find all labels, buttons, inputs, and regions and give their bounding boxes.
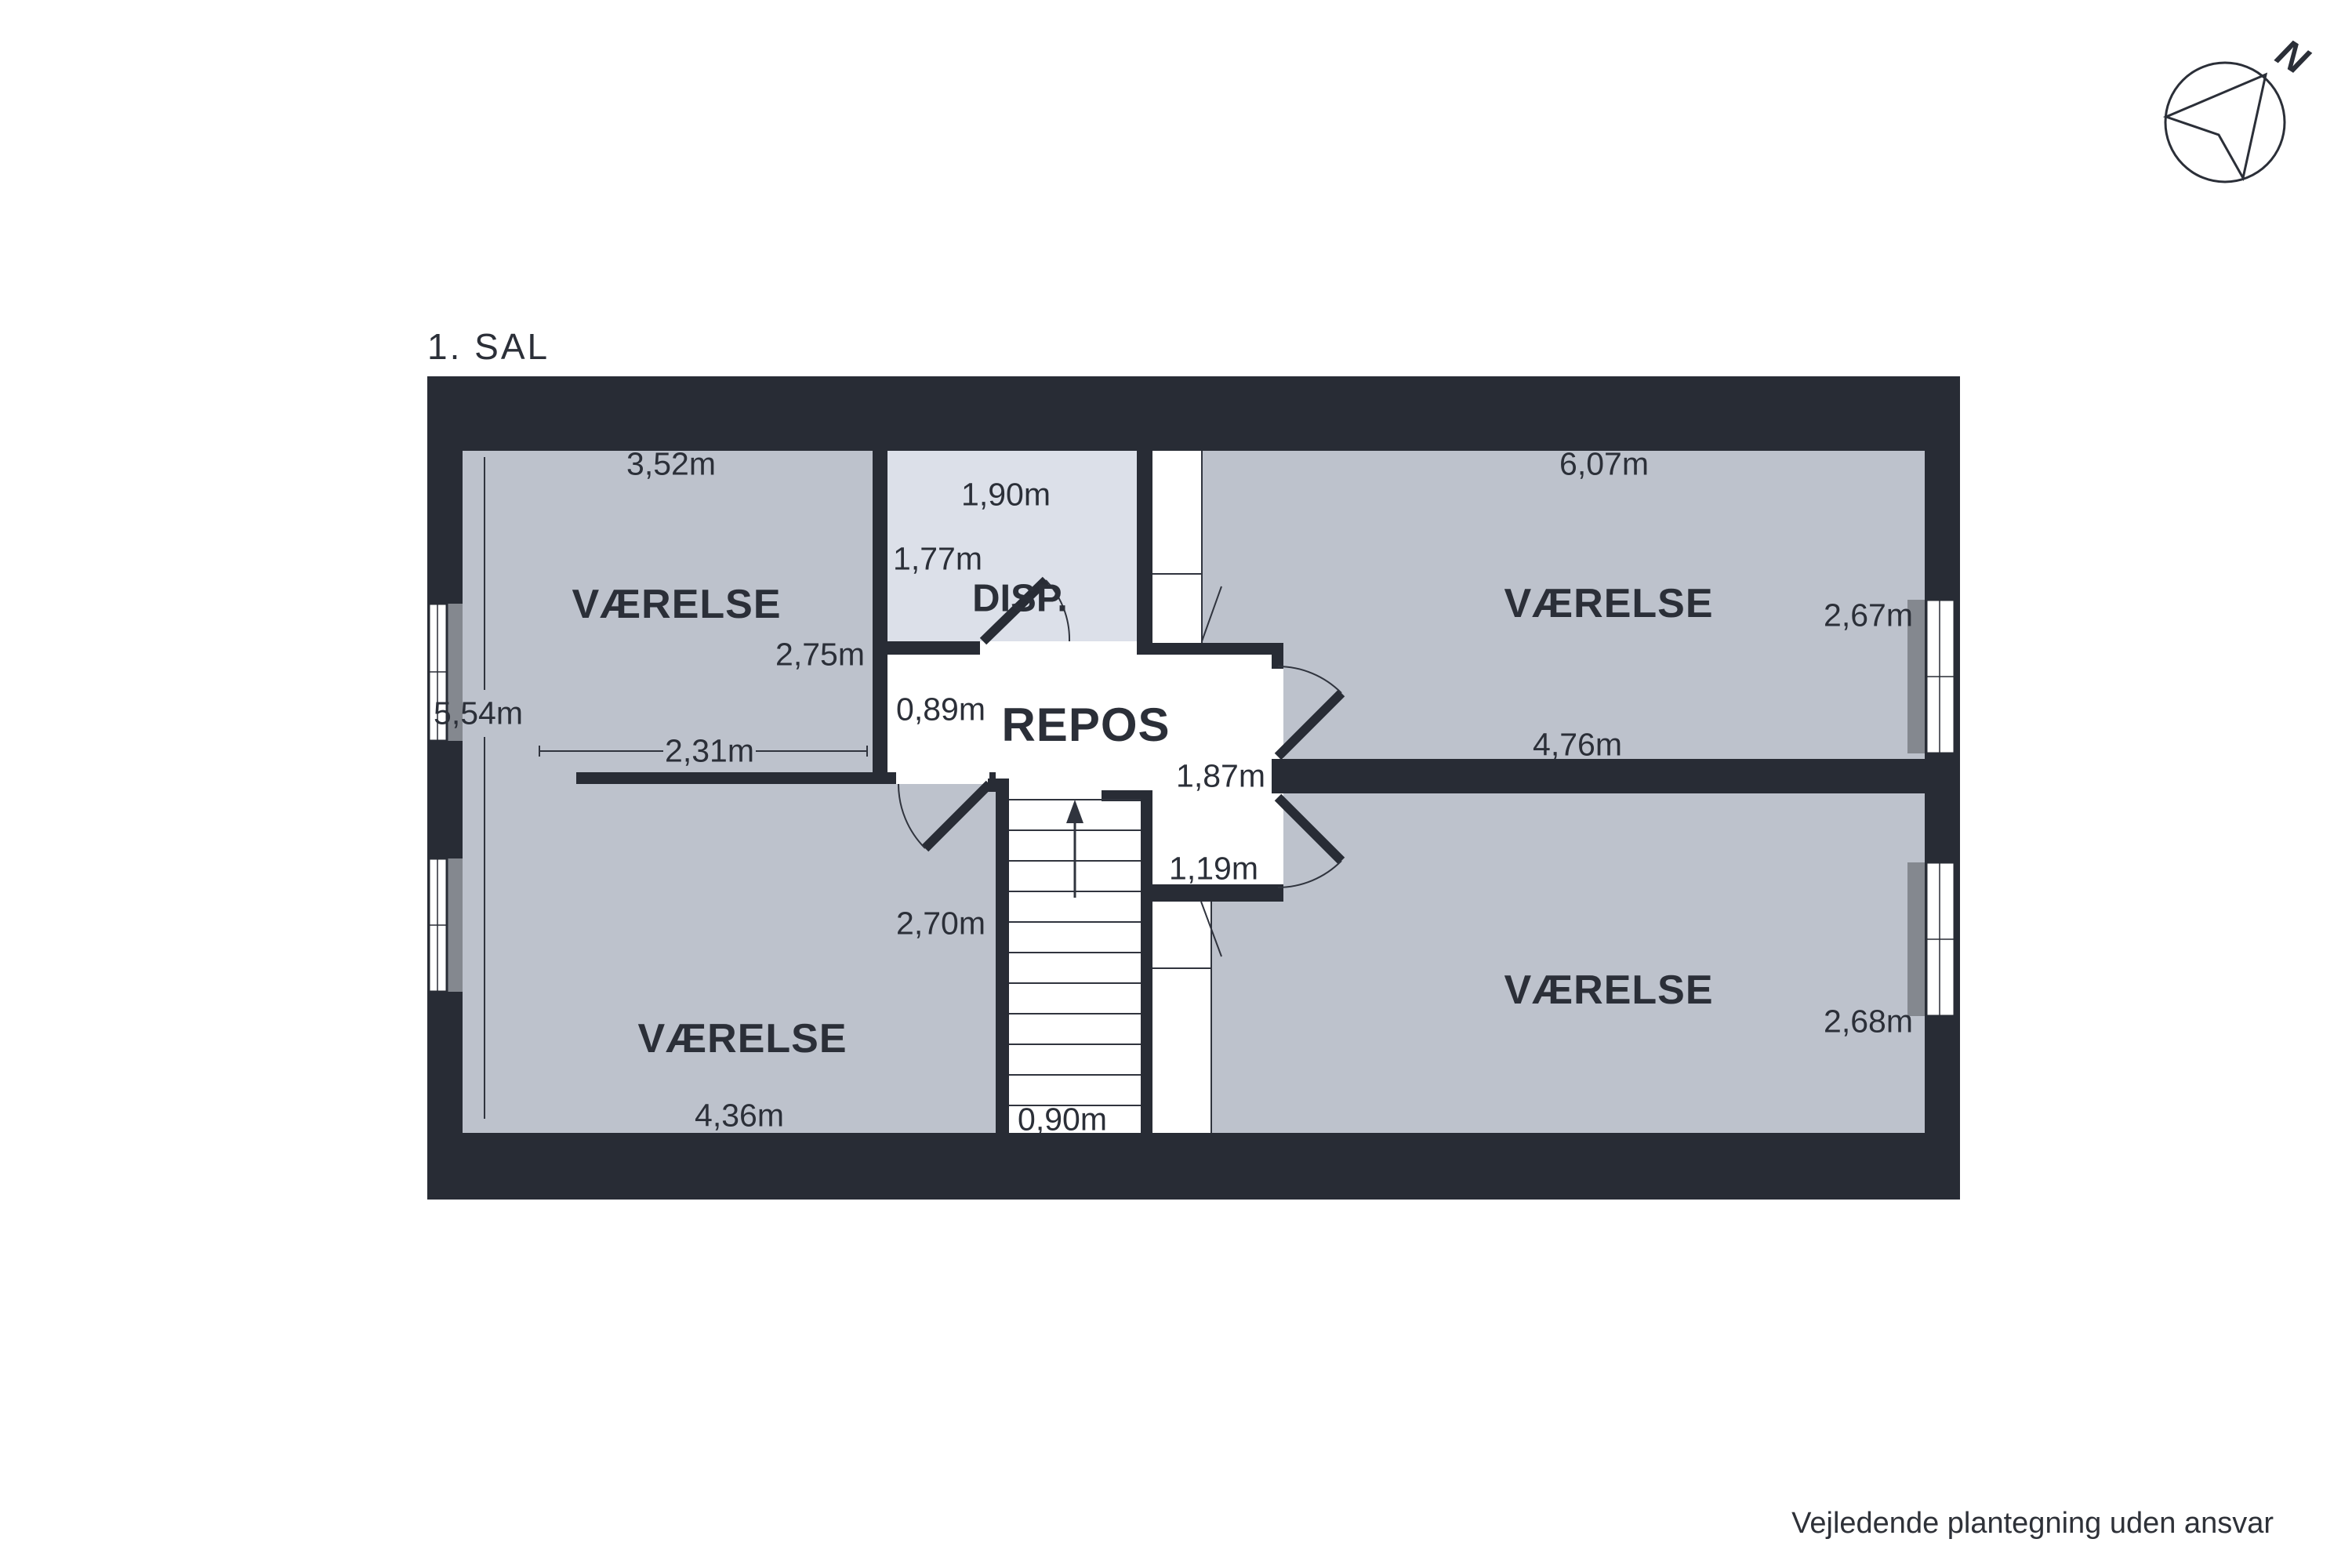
window-right-lower [1907,862,1955,1016]
room-label-top-left: VÆRELSE [572,584,781,625]
dim-top-right-width: 6,07m [1559,448,1649,481]
room-label-bottom-left: VÆRELSE [637,1018,847,1059]
room-label-bottom-right: VÆRELSE [1504,970,1713,1011]
stairs-direction-arrow [1066,800,1083,898]
dim-bottom-right-height: 2,68m [1824,1006,1913,1038]
dim-repos-nook-width: 1,19m [1169,853,1258,885]
opening-lower-strip [1152,902,1221,1133]
door-bottom-left-room [898,784,989,848]
door-bottom-right-room [1278,797,1341,887]
dim-top-right-lower: 4,76m [1533,729,1622,761]
dim-left-wall-segment: 2,31m [665,735,754,768]
dim-bottom-left-height: 2,70m [896,908,985,940]
dim-repos-right-width: 1,87m [1176,760,1265,793]
dim-top-right-height: 2,67m [1824,600,1913,632]
opening-upper-strip [1152,451,1221,643]
room-label-top-right: VÆRELSE [1504,583,1713,624]
dim-disp-width: 1,90m [961,479,1051,511]
dim-disp-height: 1,77m [893,543,982,575]
dim-top-left-height: 2,75m [775,639,865,671]
room-label-repos: REPOS [1001,702,1170,749]
dim-bottom-left-width: 4,36m [695,1100,784,1132]
window-right-upper [1907,600,1955,753]
compass-icon [2165,63,2285,182]
dim-top-left-width: 3,52m [626,448,716,481]
dim-stairs-width: 0,90m [1018,1104,1107,1136]
floorplan-page: { "title": "1. SAL", "disclaimer": "Vejl… [0,0,2352,1568]
door-top-right-room [1278,666,1341,757]
dim-repos-left-width: 0,89m [896,694,985,726]
room-label-disp: DISP. [972,580,1068,619]
disclaimer-text: Vejledende plantegning uden ansvar [1717,1507,2274,1541]
dim-left-total-height: 5,54m [434,698,523,730]
window-left-lower [429,858,463,992]
